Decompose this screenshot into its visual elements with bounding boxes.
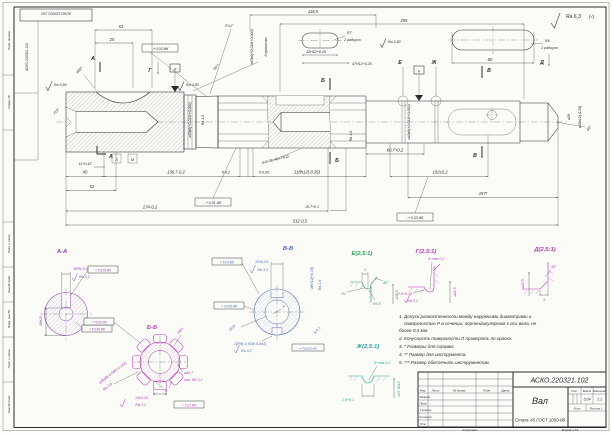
- dim-d23: ⌀23*: [228, 324, 237, 332]
- roughness-bracket: (√): [589, 14, 595, 19]
- tb-format: Формат А3: [562, 428, 579, 432]
- drawing-canvas: АСКО.220321.102 АСКО.220321.102 Перв. пр…: [0, 0, 612, 433]
- dim-60-7: 60,7+0,2: [387, 148, 404, 153]
- dim-157: 157*: [479, 191, 488, 196]
- dim-60deg: 60°*: [212, 63, 220, 71]
- dim-11: 11+0,43: [79, 162, 92, 166]
- detail-Zh-title: Ж(2,5:1): [356, 344, 380, 350]
- detail-label-E: Е: [398, 60, 402, 66]
- tol-frame-VV-1: = Т0,4 ИК: [220, 260, 235, 264]
- dim-E-45: 45°: [383, 281, 389, 285]
- dim-5: 5-0,06: [259, 171, 269, 175]
- stamp-inv-podl: Инв.№ подл.: [7, 395, 11, 413]
- view-label-D: Д: [539, 60, 544, 66]
- dim-52: 52: [90, 184, 95, 189]
- section-VV: В-В 12±0,24 Ra 3,2 ⌀8Н12(+0,15) Ra 1,6 5…: [212, 246, 324, 353]
- runout-frame-1: ↗ 0,03 ИК: [152, 47, 170, 51]
- stamp-inv-dubl: Инв.№ дубл.: [7, 275, 11, 293]
- dim-25: 25: [109, 37, 115, 42]
- dim-G-rmax: R max 0,2: [428, 257, 444, 261]
- stamp-podp-data-2: Подп. и дата: [7, 234, 11, 253]
- dim-grooves: 2 проточки: [264, 37, 268, 57]
- detail-D-title: Д(2,5:1): [533, 247, 555, 253]
- tol-frame-VV-3: = Т0,025 ИК: [299, 346, 316, 350]
- tb-part-name: Вал: [532, 396, 548, 406]
- tb-material: Сталь 45 ГОСТ 1050-88: [515, 418, 566, 423]
- section-BB-title: Б-Б: [147, 325, 157, 331]
- dim-d29: ⌀29: [567, 114, 571, 120]
- dim-51: 51: [119, 24, 124, 29]
- dim-G-ra: Ra 3,2: [407, 299, 418, 303]
- tb-sheets-label: Листов 1: [589, 406, 603, 410]
- tol-frame-VV-2: = Т0,05 ИК: [221, 304, 238, 308]
- dim-cone-angle: 3°±1°: [225, 24, 234, 28]
- dim-d38: ⌀38*: [75, 66, 84, 74]
- dim-r7-note: 2 радиуса: [343, 38, 361, 42]
- tol-frame-AA-2: = Т0,05 ИК: [89, 327, 106, 331]
- dim-8: 8-0,2: [222, 171, 230, 175]
- tb-col-dokum: № докум.: [453, 388, 466, 392]
- detail-label-Zh: Ж: [431, 60, 438, 66]
- dim-BB-ra08: Ra 0,8: [102, 382, 113, 392]
- dim-d40k6: ⌀40к6(+0,018/+0,002): [407, 104, 411, 139]
- cut-label-A-bottom: А: [108, 154, 113, 160]
- tb-col-izm: Изм.: [420, 388, 427, 392]
- dim-274: 274-0,2: [142, 205, 158, 210]
- note-1c: более 0,5 мм.: [399, 328, 428, 333]
- tb-scale-value: 1:1: [597, 398, 602, 402]
- stamp-perv-primen: Перв. примен.: [7, 30, 11, 50]
- main-view: [56, 26, 566, 152]
- dim-D-d42-5: ⌀42,5: [521, 279, 525, 288]
- dim-14: 14±0,24: [135, 396, 148, 400]
- dim-keyway-32: 32Н12+0,25: [306, 50, 326, 54]
- dim-r6-note: 2 радиуса: [540, 46, 558, 50]
- tb-row-razrab: Разраб.: [420, 395, 431, 399]
- tb-mass-value: 5,04: [584, 398, 591, 402]
- surface-label-M: М: [131, 158, 134, 162]
- stamp-podp-data: Подп. и дата: [7, 349, 11, 368]
- tb-mass-label: Масса: [583, 389, 592, 393]
- dim-E-R05: R0,5: [373, 302, 381, 306]
- roughness-value: Ra 6,3: [566, 14, 581, 20]
- dim-spline-designation: d-8×36×40×7H12: [261, 154, 289, 165]
- flank-label-N: Н: [165, 389, 168, 393]
- roughness-ra08-2: Ra 0,80: [186, 83, 199, 87]
- dim-d45k6: ⌀45к6(+0,018/+0,002): [250, 29, 254, 64]
- tb-scale-label: Масштаб: [593, 389, 606, 393]
- dim-BB-pov: пов. Ra 3,2: [184, 378, 202, 382]
- dim-d8H12: ⌀8Н12(+0,15): [310, 267, 314, 289]
- side-doc-number: АСКО.220321.102: [25, 43, 29, 72]
- dim-E-3: 3: [364, 268, 366, 272]
- view-label-G: Г: [148, 68, 152, 74]
- detail-E-title: Е(2,5:1): [352, 251, 373, 257]
- note-5: 5. *** Размер обеспечить инструментом.: [399, 360, 490, 365]
- dim-118-5: 118,5: [308, 9, 319, 14]
- tol-frame-BB-2: = Т0,2 ИК: [182, 403, 197, 407]
- dim-d40h12: ⌀40h12(-0,25): [578, 106, 582, 129]
- tb-row-prov: Пров.: [420, 402, 428, 406]
- note-1b: поверхностью Р в сечении, перпендикулярн…: [404, 321, 537, 326]
- dim-d42-7: ⌀42,7: [184, 371, 194, 375]
- tb-col-podp: Подп.: [483, 388, 491, 392]
- dim-Zh-19: 1,9+0,1: [342, 398, 354, 402]
- drawing-sheet: АСКО.220321.102 АСКО.220321.102 Перв. пр…: [0, 0, 612, 433]
- dim-D-45: 45°: [551, 265, 557, 269]
- dim-VV-ra32: Ra 3,2: [257, 268, 268, 272]
- dim-102: 102±0,2: [432, 170, 448, 175]
- top-rotated-stamp: АСКО.220321.102: [41, 12, 72, 16]
- dim-12P9: 12Р9(-0,018/-0,061): [234, 342, 266, 346]
- detail-G: Г(2,5:1) R max 0,2 1,9+0,14 Ra 3,2 ⌀42,5: [398, 249, 457, 303]
- dim-255: 255: [400, 18, 409, 23]
- detail-E: Е(2,5:1) 3 R1 R0,5 45° ⌀38,5: [341, 251, 399, 306]
- tol-frame-AA-1: = Т0,25 ИК: [95, 268, 112, 272]
- detail-Zh: Ж(2,5:1) R max 0,2 1,9+0,1 ⌀37,5h12: [342, 344, 401, 402]
- dim-VV-ra16: Ra 1,6: [318, 280, 322, 291]
- dim-D-3: 3: [543, 298, 545, 302]
- sheet-frame: [3, 3, 609, 431]
- dim-keyway-47: 47Н12+0,25: [352, 62, 372, 66]
- note-1a: 1. Допуск разностенности между наружными…: [399, 314, 532, 319]
- general-roughness: Ra 6,3 (√): [551, 13, 595, 28]
- tb-col-list: Лист: [431, 388, 440, 392]
- tb-lit-label: Лит.: [570, 389, 578, 393]
- stamp-vzam-inv: Взам. инв.№: [7, 309, 11, 327]
- note-4: 4. ** Размер для инструмента.: [399, 352, 467, 357]
- dim-VV-ra32b: Ra 3,2: [241, 349, 252, 353]
- detail-D: Д(2,5:1) 45° 3 ⌀42,5: [521, 247, 557, 302]
- dim-r6: R6: [545, 39, 550, 43]
- dim-G-d42-5: ⌀42,5: [453, 287, 457, 296]
- note-2: 2. Конусность поверхности Л проверять по…: [398, 336, 512, 341]
- cut-label-A-top: А: [90, 56, 95, 62]
- dim-tip-60: 60°: [586, 125, 593, 132]
- stamp-sprav: Справ. №: [7, 94, 11, 108]
- dim-118h12: 118h12(-0,35): [294, 170, 321, 175]
- dim-VV-5: 5-0,1: [313, 326, 321, 335]
- section-AA-title: А-А: [56, 249, 67, 255]
- dim-12-keyway: 12±0,24: [255, 260, 268, 264]
- cut-label-V-bottom: В: [473, 153, 477, 159]
- tb-row-nkontr: Н.контр.: [420, 415, 433, 419]
- roughness-ra08-3: Ra 0,80: [388, 40, 401, 44]
- tb-copied: Копировал: [463, 428, 478, 432]
- cut-label-B-bottom: Б: [335, 158, 339, 164]
- section-VV-title: В-В: [283, 246, 293, 252]
- dim-G-19: 1,9+0,14: [398, 292, 412, 296]
- dim-d36d9: ⌀36d9(-0,080/-0,142): [98, 361, 127, 385]
- tb-sheet-label: Лист: [572, 406, 581, 410]
- dim-26h12: 26h12: [39, 316, 43, 327]
- tb-row-tkontr: Т.контр.: [420, 408, 432, 412]
- cut-label-B-top: Б: [321, 78, 325, 84]
- dim-512: 512-0,5: [293, 219, 308, 224]
- runout-frame-2: ↗ 0,01 ИК: [205, 201, 223, 205]
- title-block: Изм. Лист № докум. Подп. Дата Разраб. Пр…: [418, 372, 606, 432]
- dim-E-R1: R1: [341, 292, 346, 296]
- tb-col-data: Дата: [501, 388, 510, 392]
- dim-r7: R7: [347, 31, 353, 35]
- dim-d30k6: ⌀30к6(+0,015/+0,002): [188, 102, 192, 137]
- detail-G-title: Г(2,5:1): [416, 249, 437, 255]
- roughness-ra08-1: Ra 0,80: [54, 83, 67, 87]
- tol-frame-BB-1: = Т0,05 ИК: [91, 320, 108, 324]
- cut-label-V-top: В: [487, 68, 491, 74]
- dim-BB-ra32: Ra 3,2: [135, 403, 146, 407]
- technical-notes: 1. Допуск разностенности между наружными…: [398, 314, 537, 365]
- dim-BB-d40: ⌀40*: [176, 327, 185, 335]
- tb-doc-number: АСКО.220321.102: [530, 378, 589, 385]
- dim-115deg: 115°: [52, 107, 60, 115]
- runout-frame-3: ↗ 0,03 ИК: [407, 216, 425, 220]
- datum-K: К: [418, 70, 421, 74]
- frame-stamps: АСКО.220321.102 АСКО.220321.102 Перв. пр…: [7, 12, 72, 413]
- dim-40: 40: [83, 170, 88, 175]
- roughness-ra16-1: Ra 1,6: [201, 115, 205, 126]
- dim-Zh-d37-5: ⌀37,5h12: [397, 381, 401, 396]
- tb-row-utv: Утв.: [420, 422, 427, 426]
- section-AA: А-А 8Р9(-0,015/-0,051) Ra 3,2 26h12 = Т0…: [39, 249, 118, 340]
- dim-136-7: 136,7-0,2: [167, 170, 185, 175]
- dim-80: 80: [488, 57, 493, 62]
- dim-Zh-rmax: R max 0,2: [374, 361, 390, 365]
- surface-label-L: Л: [114, 158, 118, 162]
- note-3: 3. * Размеры для справок.: [399, 344, 455, 349]
- dim-16-7: 16,7+0,1: [305, 205, 319, 209]
- roughness-ra16-2: Ra 1,6: [349, 131, 353, 142]
